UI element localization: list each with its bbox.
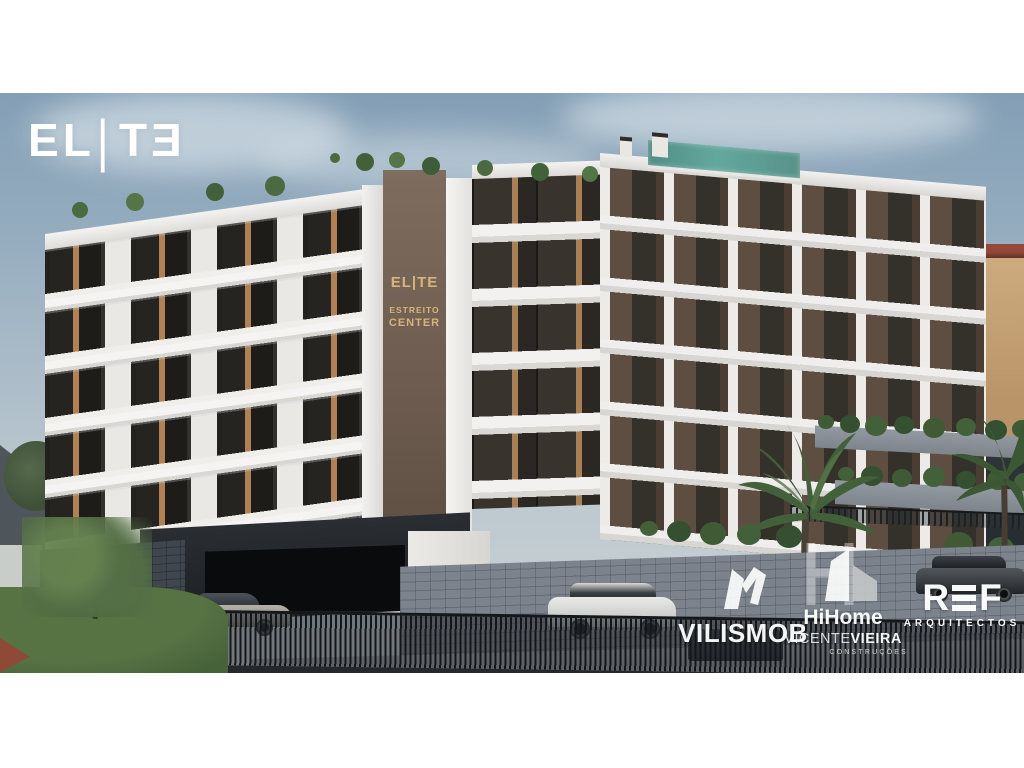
elite-logo-glyph-mirrored-t: T: [115, 117, 147, 163]
elite-logo-bar-glyph: |: [97, 111, 113, 169]
hihome-logo: HiHome VICENTEVIEIRA CONSTRUÇÕES: [768, 543, 918, 656]
rooftop-planting: [330, 153, 340, 163]
architectural-render-page: EL|TE ESTREITO CENTER: [0, 0, 1024, 768]
sign-line-estreito: ESTREITO: [383, 305, 446, 315]
building-render-image: EL|TE ESTREITO CENTER: [0, 93, 1024, 673]
building-sign: EL|TE ESTREITO CENTER: [383, 274, 446, 329]
building-sign-panel: EL|TE ESTREITO CENTER: [383, 170, 446, 550]
elite-logo-glyph-mirrored-e: E: [147, 117, 182, 163]
sign-brand-text: EL|TE: [383, 274, 446, 291]
hihome-name-vicente: VICENTE: [784, 631, 850, 647]
vilismob-mark-icon: [710, 565, 776, 611]
ref-letter-r: R: [922, 581, 949, 614]
ref-wordmark: R F: [903, 581, 1021, 614]
center-balcony-grid: [472, 174, 602, 509]
garden-bushes: [640, 521, 658, 536]
ref-letter-f: F: [979, 581, 1002, 614]
hihome-name-vieira: VIEIRA: [851, 631, 902, 647]
hihome-wordmark: HiHome: [768, 606, 918, 630]
hihome-construcoes-label: CONSTRUÇÕES: [768, 649, 918, 656]
sign-line-center: CENTER: [383, 317, 446, 329]
bottom-white-margin: [0, 673, 1024, 768]
ref-arquitectos-logo: R F ARQUITECTOS: [903, 581, 1021, 629]
hihome-company-name: VICENTEVIEIRA: [768, 631, 918, 647]
elite-logo-glyph: E: [28, 117, 63, 163]
elite-logo: E L | T E: [28, 117, 182, 163]
ref-arquitectos-label: ARQUITECTOS: [903, 618, 1021, 629]
hihome-house-icon: [797, 543, 889, 605]
building-center-balconies: [472, 160, 602, 509]
elite-logo-glyph: L: [63, 117, 95, 163]
rooftop-chimney: [652, 132, 668, 157]
facade-white-column: [446, 178, 472, 553]
ref-e-bars-icon: [952, 585, 976, 611]
top-white-margin: [0, 0, 1024, 93]
rooftop-chimney: [620, 136, 632, 157]
facade-white-column: [362, 185, 384, 557]
tree-foliage: [22, 517, 152, 617]
